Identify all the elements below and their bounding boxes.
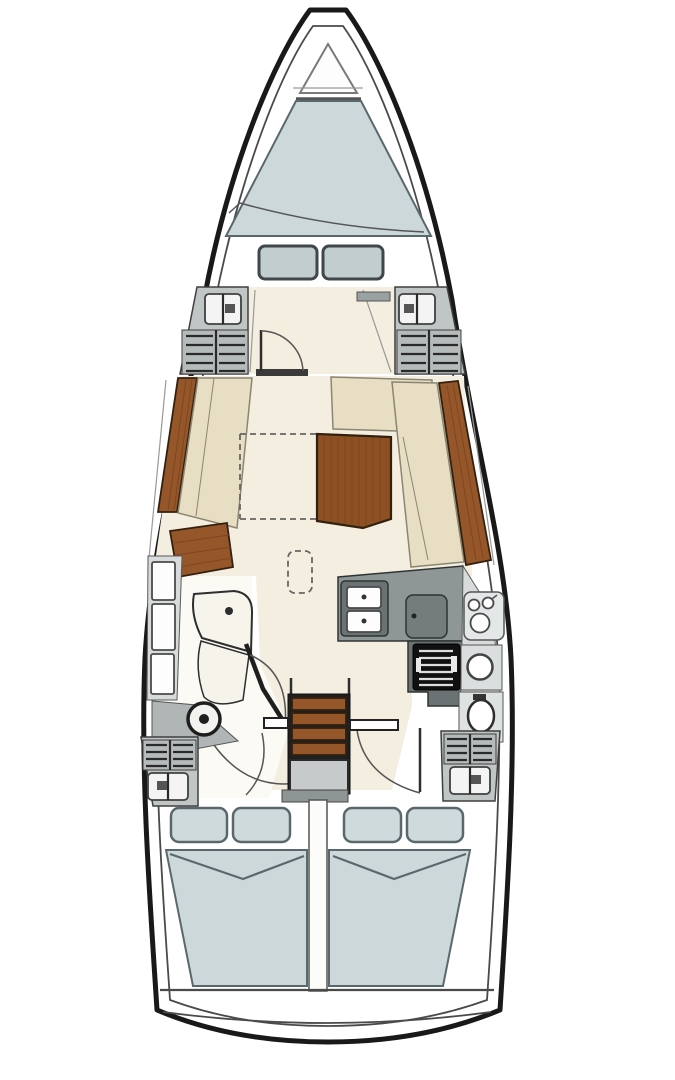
pillow-port-1	[171, 808, 227, 842]
yacht-floorplan-canvas	[0, 0, 675, 1080]
yacht-floorplan	[0, 0, 675, 1080]
berth-foot-cushion-right	[323, 246, 383, 279]
aft-cabins	[160, 800, 494, 991]
pillow-starboard-2	[407, 808, 463, 842]
grab-rail-port	[264, 718, 288, 728]
step-2	[292, 713, 346, 725]
vanity-tap-left	[469, 600, 480, 611]
sink-left-drain	[362, 595, 367, 600]
aft-cabin-starboard	[329, 808, 470, 986]
grab-rail-starboard	[350, 720, 398, 730]
step-3	[292, 728, 346, 740]
door-step	[357, 292, 390, 301]
aft-cabinet-handle-starboard	[471, 775, 481, 784]
cabinet-handle-starboard	[404, 304, 414, 313]
nav-stool-pedestal	[199, 714, 209, 724]
stove-gimbal-right	[451, 656, 457, 672]
nav-locker-1	[152, 562, 175, 600]
fridge-latch	[412, 614, 417, 619]
berth-foot-cushion-left	[259, 246, 317, 279]
washbasin	[468, 655, 493, 680]
cabinet-handle-port	[225, 304, 235, 313]
stove-gimbal-left	[416, 658, 421, 672]
aft-cabin-port	[166, 808, 307, 986]
engine-box	[290, 760, 348, 792]
vanity-basin	[471, 614, 490, 633]
cabin-divider	[309, 800, 327, 991]
step-1	[292, 698, 346, 710]
step-4	[292, 743, 346, 755]
aft-cabinet-handle-port	[157, 781, 167, 790]
toilet	[468, 700, 494, 732]
door-sill	[256, 369, 308, 376]
pillow-port-2	[233, 808, 290, 842]
sink-right-drain	[362, 619, 367, 624]
chart-table-lamp	[225, 607, 233, 615]
bulkhead-lockers	[180, 287, 465, 376]
nav-locker-2	[152, 604, 175, 650]
nav-locker-3	[151, 654, 174, 694]
pillow-starboard-1	[344, 808, 401, 842]
vanity-tap-right	[483, 598, 494, 609]
